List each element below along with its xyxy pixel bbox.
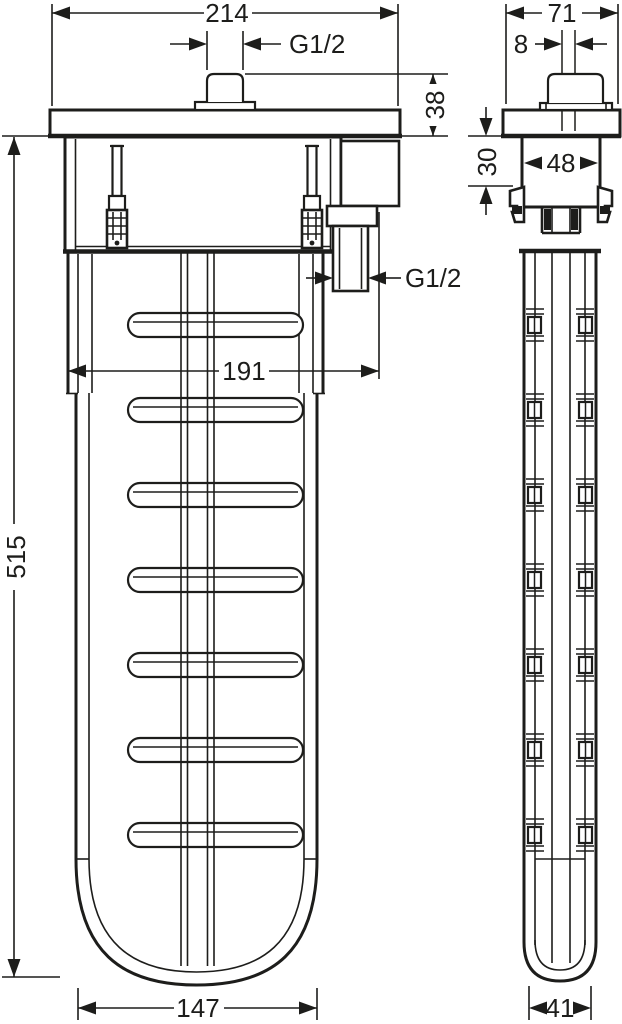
retaining-clip-right <box>598 187 612 222</box>
arrow-left <box>506 7 524 20</box>
hose-tube <box>181 253 214 966</box>
dim-label-515: 515 <box>1 535 31 578</box>
arrow-down <box>8 959 21 977</box>
front-plate <box>48 110 402 136</box>
dimension-body-width: 147 <box>78 988 317 1023</box>
dim-label-71: 71 <box>548 0 577 28</box>
arrow-up <box>480 186 493 204</box>
dimension-top-thread: G1/2 <box>170 29 345 70</box>
arrow-right <box>361 365 379 378</box>
dim-label-147: 147 <box>176 993 219 1023</box>
arrow-right <box>580 157 598 170</box>
arrow-left <box>368 272 386 285</box>
arrow-left <box>575 38 593 51</box>
dim-label-g12-outlet: G1/2 <box>405 263 461 293</box>
arrow-right <box>299 1002 317 1015</box>
outlet-bracket <box>341 141 399 206</box>
arrow-left <box>529 1002 547 1015</box>
dimension-housing-width: 48 <box>524 148 598 178</box>
arrow-left <box>52 7 70 20</box>
drawing-svg: 214 G1/2 38 G1/2 191 <box>0 0 622 1024</box>
arrow-right <box>380 7 398 20</box>
dim-label-191: 191 <box>222 356 265 386</box>
push-button <box>195 74 255 110</box>
dim-label-214: 214 <box>205 0 248 28</box>
front-view <box>48 74 402 985</box>
arrow-right <box>600 7 618 20</box>
arrow-right <box>544 38 562 51</box>
arrow-right <box>573 1002 591 1015</box>
side-plate <box>501 110 621 136</box>
dim-label-30: 30 <box>472 148 502 177</box>
dimension-outlet-thread: G1/2 <box>306 263 461 293</box>
dimension-body-depth: 41 <box>529 986 591 1023</box>
dim-label-41: 41 <box>546 993 575 1023</box>
arrow-left <box>243 38 261 51</box>
retaining-clip-left <box>510 187 524 222</box>
dim-label-8: 8 <box>514 29 528 59</box>
front-body <box>66 252 325 985</box>
dim-label-48: 48 <box>547 148 576 178</box>
connector-nut <box>542 207 580 233</box>
arrow-up <box>8 137 21 155</box>
arrow-left <box>68 365 86 378</box>
arrow-left <box>524 157 542 170</box>
dimension-body-length: 515 <box>1 136 64 977</box>
arrow-down <box>480 118 493 136</box>
technical-drawing-page: 214 G1/2 38 G1/2 191 <box>0 0 622 1024</box>
dim-label-g12-top: G1/2 <box>289 29 345 59</box>
side-body <box>519 251 601 981</box>
dimension-button-offset: 8 <box>514 29 607 59</box>
arrow-right <box>189 38 207 51</box>
dim-label-38: 38 <box>420 91 450 120</box>
arrow-left <box>78 1002 96 1015</box>
